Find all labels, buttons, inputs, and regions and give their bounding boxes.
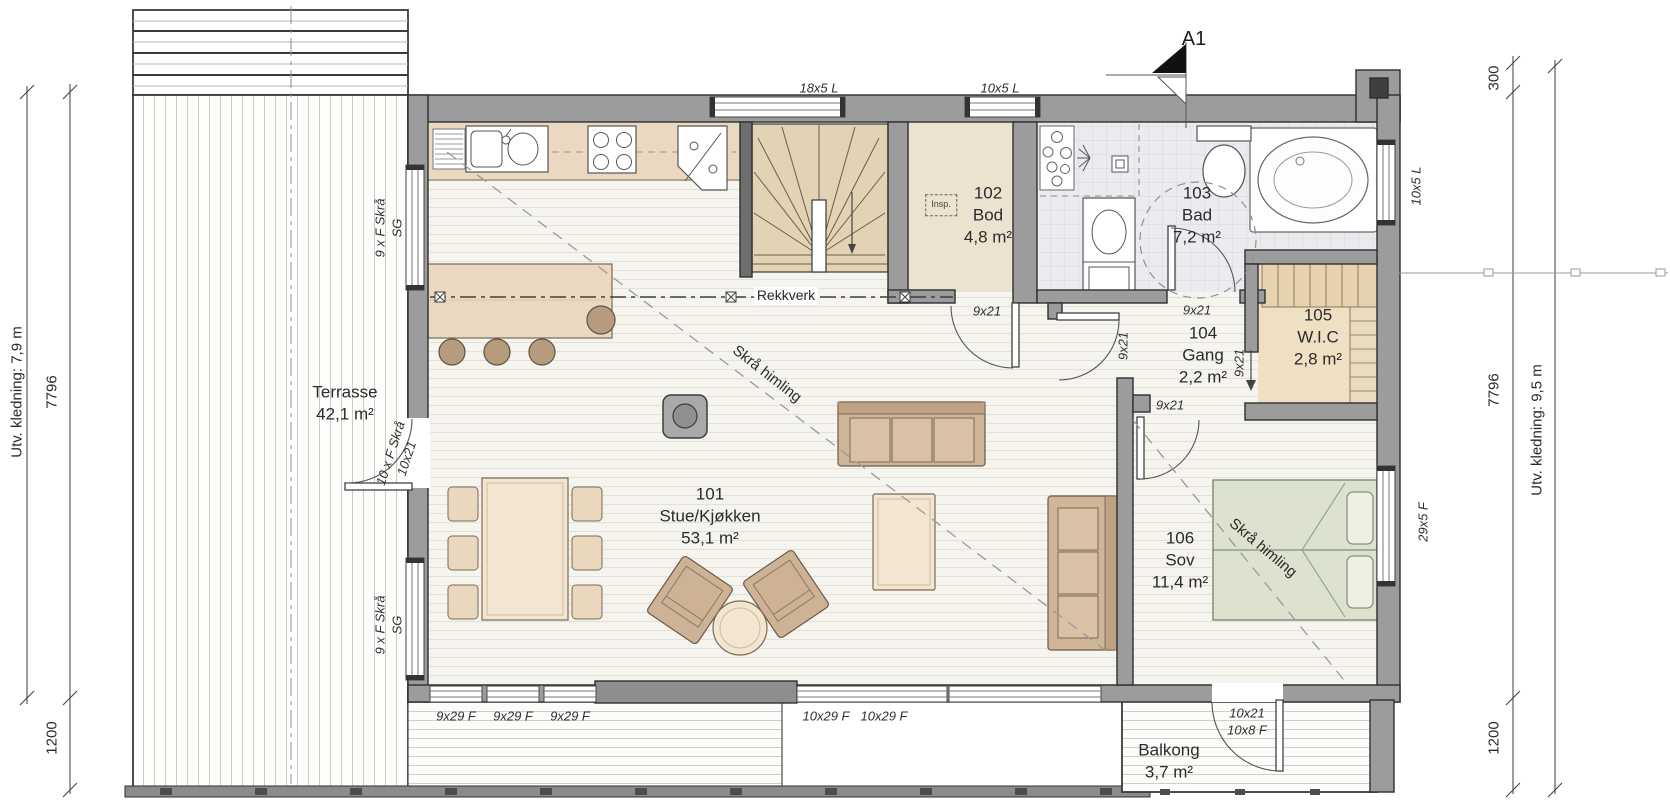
pergola	[133, 10, 408, 95]
dim-label-right-1200: 1200	[1484, 721, 1503, 754]
stool	[439, 339, 465, 365]
dining-table	[482, 478, 568, 620]
door-label: 9x21	[1232, 349, 1249, 377]
window-left-lower	[406, 558, 424, 680]
window-label: 18x5 L	[799, 81, 838, 98]
balcony-door-leaf	[1276, 700, 1283, 771]
room-label-102: 102 Bod 4,8 m²	[964, 182, 1012, 247]
door-label: 9x21	[973, 304, 1001, 321]
window-right-lower	[1377, 466, 1395, 586]
window-10x5-top	[965, 97, 1040, 117]
kitchen-sink	[466, 126, 548, 172]
room-label-103: 103 Bad 7,2 m²	[1173, 182, 1221, 247]
toilet-tank	[1197, 126, 1251, 141]
window-label: 29x5 F	[1416, 502, 1433, 542]
window-label: 9 x F Skrå SG	[372, 595, 405, 654]
window-label: 10x5 L	[980, 81, 1019, 98]
window-label: 10x29 F	[803, 709, 850, 726]
floor-plan: 101 Stue/Kjøkken 53,1 m² 102 Bod 4,8 m² …	[0, 0, 1670, 800]
dim-label-right-cladding: Utv. kledning: 9,5 m	[1527, 364, 1546, 495]
inspection-hatch-label: Insp.	[925, 194, 957, 216]
kitchen-island	[428, 264, 612, 338]
bod-door-leaf	[1012, 303, 1019, 367]
window-label: 9x29 F	[436, 709, 476, 726]
window-label: 10x29 F	[861, 709, 908, 726]
window-right-upper	[1377, 140, 1395, 225]
dim-label-left-7796: 7796	[42, 375, 61, 408]
stool	[529, 339, 555, 365]
dim-label-left-1200: 1200	[42, 721, 61, 754]
stool	[484, 339, 510, 365]
door-label: 9x21	[1116, 332, 1133, 360]
window-label: 9 x F Skrå SG	[372, 198, 405, 257]
staircase	[752, 124, 888, 272]
room-label-104: 104 Gang 2,2 m²	[1179, 322, 1227, 387]
vanity	[1083, 198, 1135, 297]
terrace-label: Terrasse 42,1 m²	[312, 381, 377, 425]
window-label: 10x5 L	[1409, 166, 1426, 205]
window-18x5	[710, 97, 845, 117]
window-label: 9x29 F	[493, 709, 533, 726]
dim-label-right-7796: 7796	[1484, 373, 1503, 406]
side-table	[713, 601, 767, 655]
balcony-label: Balkong 3,7 m²	[1138, 739, 1199, 783]
dim-label-left-cladding: Utv. kledning: 7,9 m	[7, 326, 26, 457]
room-label-105: 105 W.I.C 2,8 m²	[1294, 304, 1342, 369]
balcony-door-opening	[1212, 683, 1283, 702]
floor-drain	[1112, 156, 1128, 172]
pillow	[1347, 492, 1373, 544]
coffee-table	[873, 494, 935, 590]
terrace-area	[133, 95, 408, 788]
pillow	[1347, 556, 1373, 608]
bedroom-furniture	[1213, 480, 1377, 620]
floor-plan-drawing	[0, 0, 1670, 800]
section-label: A1	[1182, 27, 1206, 53]
gang-door-leaf	[1057, 313, 1119, 320]
railing-label: Rekkverk	[754, 287, 818, 305]
window-label: 9x29 F	[550, 709, 590, 726]
room-label-101: 101 Stue/Kjøkken 53,1 m²	[659, 483, 760, 548]
stool	[587, 306, 615, 334]
door-label: 9x21	[1183, 303, 1211, 320]
door-label: 9x21	[1156, 398, 1184, 415]
dim-label-right-300: 300	[1484, 65, 1503, 90]
room-label-106: 106 Sov 11,4 m²	[1152, 527, 1208, 592]
window-left-upper	[406, 165, 424, 290]
door-label: 10x21 10x8 F	[1227, 705, 1267, 738]
